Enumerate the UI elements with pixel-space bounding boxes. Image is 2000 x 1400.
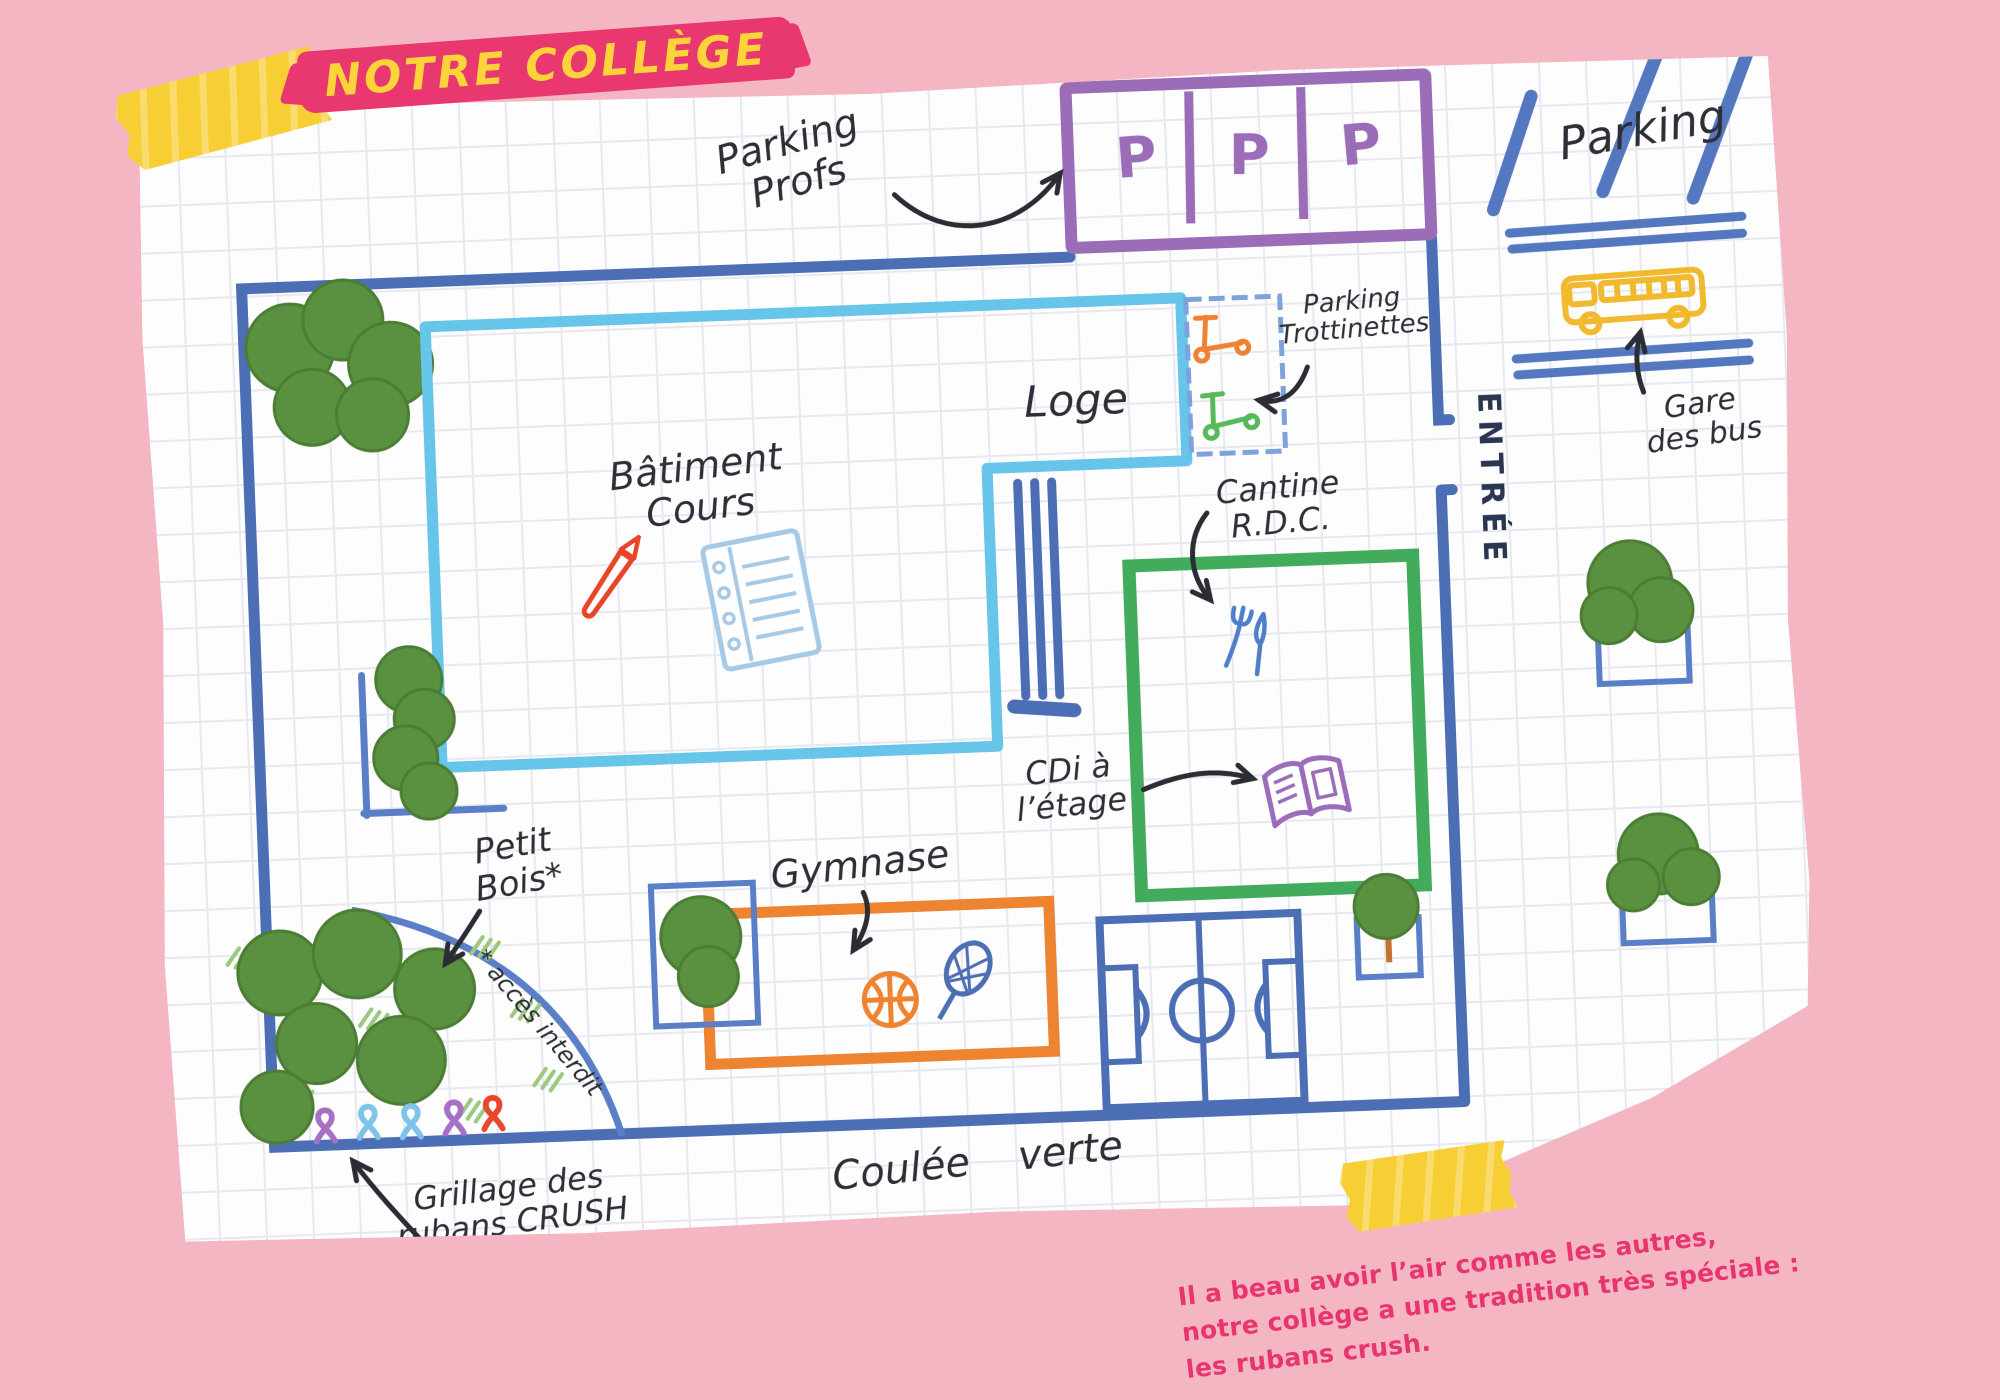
stairs [1006,481,1075,712]
scooter-green-icon [1201,393,1258,440]
entrance-tree-bottom [1605,812,1722,944]
parking-stall-p: P [1104,123,1169,192]
racket-icon [922,935,999,1029]
courtyard-bush [369,645,458,821]
pen-icon [580,531,647,620]
scooter-orange-icon [1191,315,1251,365]
parking-stall-p: P [1219,123,1279,188]
book-icon [1263,753,1349,825]
notebook-icon [702,530,820,670]
cantine-label: Cantine R.D.C. [1204,464,1355,546]
gym-side-tree [651,883,758,1027]
cdi-label: CDi à l’étage [994,745,1146,829]
loge-label: Loge [1018,376,1135,427]
arrow-parking-profs [894,176,1060,228]
notebook-paper: Parking Profs P P P Parking Gare des bus… [129,49,1822,1251]
title-banner-text: NOTRE COLLÈGE [322,23,769,106]
sports-field [1099,913,1304,1108]
basketball-icon [863,973,917,1027]
parking-stall-p: P [1328,110,1394,180]
field-side-tree [1353,873,1421,977]
arrow-cantine [1191,513,1210,598]
school-map [129,49,1822,1251]
batiment-cours-outline [425,298,1197,768]
cutlery-icon [1222,606,1270,674]
trees-top-left [243,277,435,456]
cantine-outline [1129,555,1425,896]
bus-icon [1563,269,1705,334]
arrow-gymnase [853,892,869,946]
arrow-cdi [1143,771,1249,789]
illustration-canvas: Parking Profs P P P Parking Gare des bus… [0,0,2000,1400]
entree-label: ENTRÉE [1471,391,1511,562]
entrance-tree-top [1578,538,1695,684]
caption-text: Il a beau avoir l’air comme les autres, … [1176,1205,1844,1388]
